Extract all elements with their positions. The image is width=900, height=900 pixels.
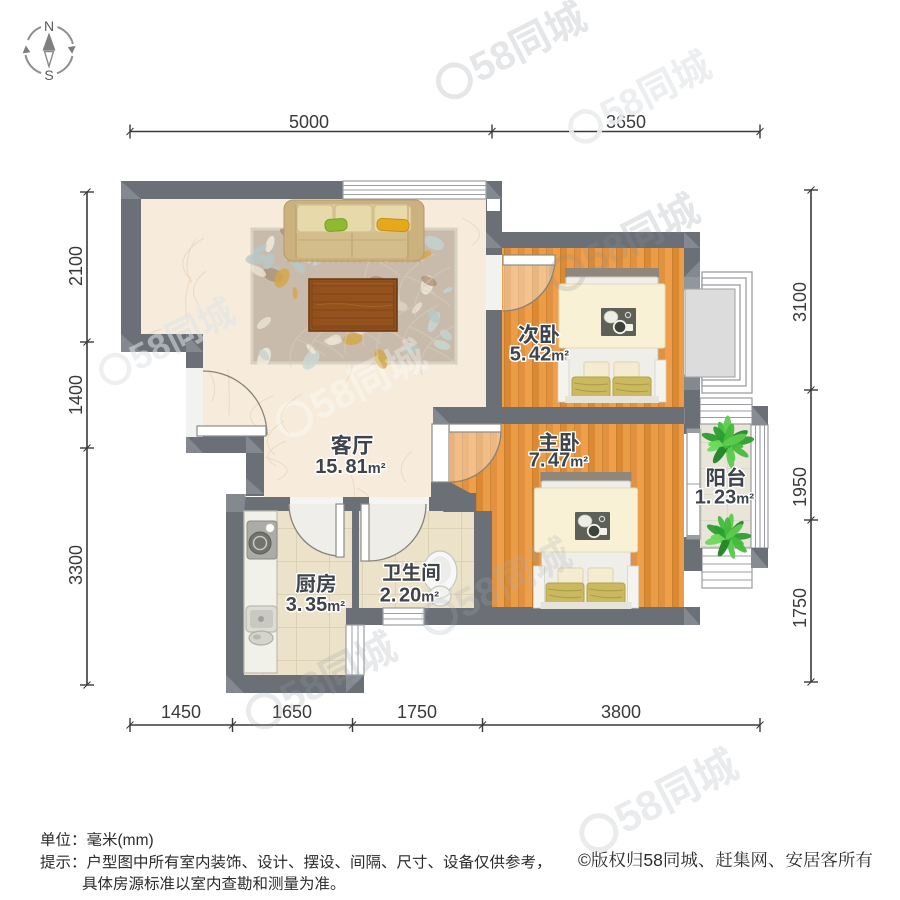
svg-text:1450: 1450 [161,702,201,722]
svg-text:S: S [44,67,53,83]
svg-text:3300: 3300 [66,545,86,585]
svg-text:1400: 1400 [66,375,86,415]
svg-text:1950: 1950 [790,467,810,507]
svg-text:3800: 3800 [601,702,641,722]
svg-text:3100: 3100 [790,282,810,322]
svg-text:(mm): (mm) [118,832,154,849]
svg-text:©: © [578,850,591,870]
svg-text:1750: 1750 [790,588,810,628]
svg-text:1750: 1750 [397,702,437,722]
svg-text:N: N [44,18,54,34]
svg-text:2100: 2100 [66,246,86,286]
svg-text:58: 58 [643,850,662,870]
svg-text:5000: 5000 [289,112,329,132]
